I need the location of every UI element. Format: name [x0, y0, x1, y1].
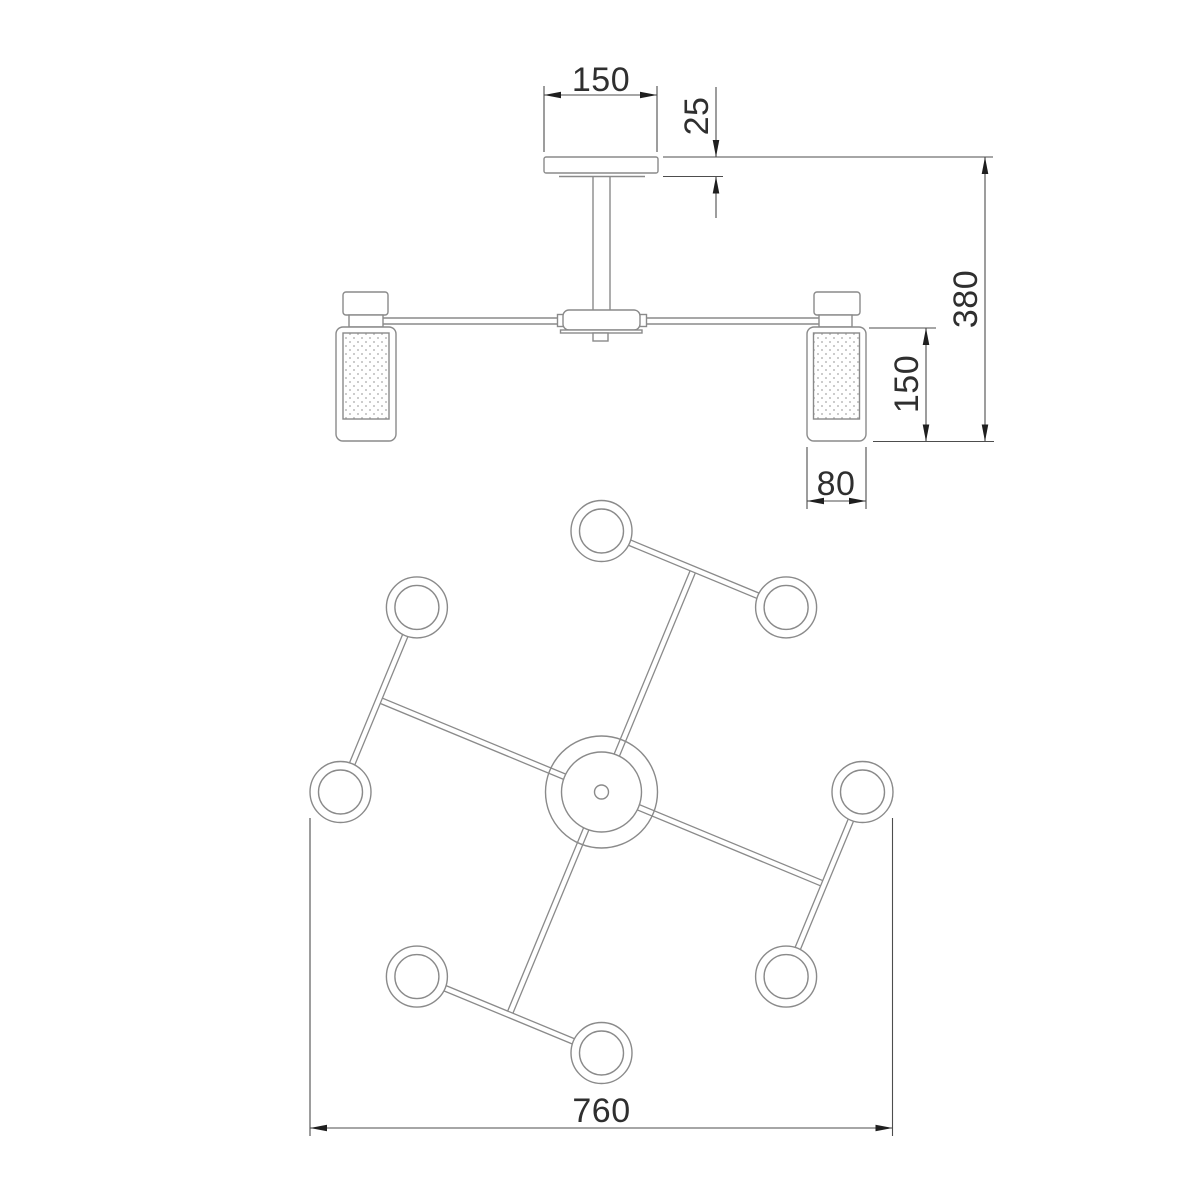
dim-canopy-height: 25	[663, 87, 993, 218]
plan-hub	[546, 736, 658, 848]
dimension-label: 150	[888, 355, 926, 413]
hub-plate	[562, 752, 642, 832]
dim-shade-width: 80	[807, 447, 866, 509]
dimension-label: 25	[678, 97, 716, 136]
arrowhead-down	[713, 140, 720, 157]
arrowhead-down	[982, 425, 989, 442]
arrowhead-up	[923, 328, 930, 345]
right-socket	[814, 292, 860, 315]
plan-view	[310, 501, 893, 1084]
side-view-dimensions: 150 25 380 150	[544, 61, 994, 509]
side-view	[336, 157, 866, 441]
dimension-label: 380	[947, 270, 985, 328]
arrowhead-right	[876, 1125, 893, 1132]
dim-canopy-width: 150	[544, 61, 657, 152]
drawing-canvas: 150 25 380 150	[0, 0, 1200, 1200]
dim-shade-height: 150	[869, 328, 936, 442]
arrowhead-up	[713, 177, 720, 194]
canopy-outline	[544, 157, 658, 173]
left-neck	[349, 315, 383, 327]
right-lamp-side	[807, 292, 866, 441]
hub-bottom-tab	[593, 333, 608, 341]
arrowhead-up	[982, 157, 989, 174]
lamp-dimension-drawing: 150 25 380 150	[0, 0, 1200, 1200]
hub-body	[563, 310, 640, 330]
arrowhead-down	[923, 425, 930, 442]
left-socket	[343, 292, 388, 315]
central-hub-side	[558, 310, 647, 341]
right-diffuser	[814, 333, 860, 419]
canopy	[544, 157, 658, 177]
arrowhead-right	[640, 92, 657, 99]
right-neck	[819, 315, 852, 327]
stem	[593, 177, 610, 311]
dimension-label: 80	[817, 465, 856, 503]
left-lamp-side	[336, 292, 396, 441]
dimension-label: 760	[572, 1092, 630, 1130]
arrowhead-left	[310, 1125, 327, 1132]
dimension-label: 150	[572, 61, 630, 99]
arrowhead-left	[544, 92, 561, 99]
left-diffuser	[343, 333, 389, 419]
